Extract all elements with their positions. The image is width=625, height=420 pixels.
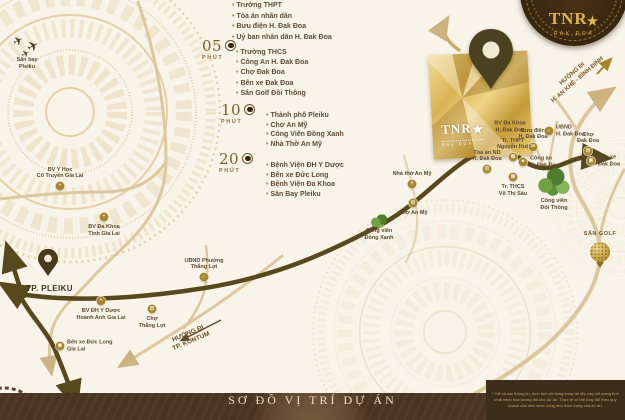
- disclaimer-text: * Tất cả các thông tin, hình ảnh sử dụng…: [486, 389, 625, 412]
- map-marker-label: Sân bayPleiku: [16, 57, 37, 70]
- city-marker: TP. PLEIKU: [36, 248, 60, 293]
- map-marker-label: Bưu điệnH. Đak Đoa: [518, 128, 547, 141]
- map-marker-label: BV Y HọcCổ Truyền Gia Lai: [37, 167, 84, 180]
- poi-icon: ✉: [529, 143, 538, 152]
- map-marker-label: Công viênĐồi Thông: [540, 198, 567, 211]
- poi-icon: ▤: [148, 305, 157, 314]
- poi-icon: ▦: [509, 173, 518, 182]
- poi-icon: +: [56, 182, 65, 191]
- poi-icon: ⌂: [545, 127, 554, 136]
- map-marker-label: Nhà thờ An Mỹ: [393, 171, 432, 178]
- poi-icon: ▤: [584, 147, 593, 156]
- poi-icon: ▥: [483, 165, 492, 174]
- map-marker-label: Bến xe Đức LongGia Lai: [67, 339, 113, 352]
- map-marker-label: Bến xeĐak Đoa: [598, 154, 620, 167]
- map-marker-label: UBND PhườngThắng Lợi: [184, 258, 223, 271]
- poi-icon: +: [97, 297, 106, 306]
- poi-icon: ▦: [509, 153, 518, 162]
- poi-icon: ★: [519, 158, 528, 167]
- map-marker-label: BV Đa KhoaTỉnh Gia Lai: [88, 224, 119, 237]
- map-marker-label: Chợ An Mỹ: [398, 210, 427, 217]
- poi-icon: ▤: [409, 199, 418, 208]
- map-marker-label: ChợĐak Đoa: [577, 132, 599, 145]
- poi-icon: +: [100, 213, 109, 222]
- badge-brand-text: TNR: [549, 9, 588, 28]
- brand-badge-content: TNR★ ĐAK ĐOA: [520, 9, 625, 37]
- poi-icon: ▣: [56, 342, 65, 351]
- map-marker-label: ChợThắng Lợi: [139, 316, 166, 329]
- map-marker-label: Công anH. Đak Đoa: [530, 155, 559, 168]
- tree-large-icon: [537, 168, 571, 197]
- project-pin-icon: [467, 27, 515, 91]
- map-marker-label: Tòa án NDH. Đak Đoa: [472, 150, 501, 163]
- site-location-map: •Trường THPT•Tòa án nhân dân•Bưu điện H.…: [0, 0, 625, 420]
- golf-ball-icon: [590, 242, 610, 262]
- map-marker-label: Tr. THCSVõ Thị Sáu: [499, 184, 527, 197]
- map-markers: ✈✈✈Sân bayPleiku+BV Y HọcCổ Truyền Gia L…: [0, 0, 625, 420]
- disclaimer-box: * Tất cả các thông tin, hình ảnh sử dụng…: [486, 380, 625, 420]
- tree-icon: [371, 215, 387, 228]
- city-pin-label: TP. PLEIKU: [26, 284, 60, 293]
- map-marker-label: BV ĐH Y DượcHoành Anh Gia Lai: [77, 308, 126, 321]
- city-pin-icon: [37, 248, 59, 277]
- star-icon: ★: [586, 13, 599, 30]
- map-marker-label: SÂN GOLF: [584, 231, 616, 238]
- map-marker-label: Công viênĐồng Xanh: [364, 228, 393, 241]
- poi-icon: ⌂: [200, 273, 209, 282]
- poi-icon: ▣: [587, 157, 596, 166]
- badge-location-text: ĐAK ĐOA: [520, 32, 625, 37]
- poi-icon: ✝: [408, 180, 417, 189]
